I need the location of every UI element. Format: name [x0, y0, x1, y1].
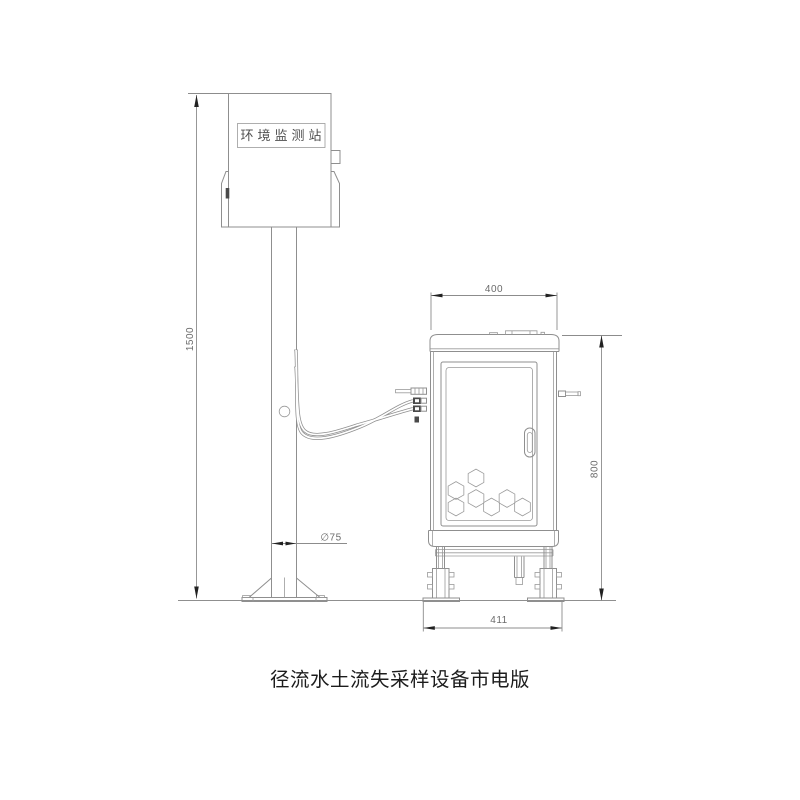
mounting-pole [272, 227, 299, 598]
dimension-411: 411 [423, 602, 562, 632]
door-handle [525, 428, 536, 457]
sampling-cabinet [396, 331, 581, 602]
station-bracket-left [222, 172, 229, 228]
drain-fitting-right [559, 391, 581, 397]
gland-1 [413, 398, 427, 405]
dimension-800: 800 [562, 336, 622, 601]
technical-drawing-page: 1500 环境监测站 [0, 0, 800, 800]
hexagon-pattern [448, 469, 530, 516]
pole-base [242, 578, 327, 602]
leg-right [528, 547, 565, 602]
dimension-1500-value: 1500 [185, 327, 196, 351]
station-side-tab [331, 151, 340, 164]
monitor-station-assembly: 环境监测站 [222, 94, 341, 602]
base-rails [436, 550, 554, 557]
technical-drawing: 1500 环境监测站 [0, 0, 800, 800]
dimension-800-value: 800 [590, 460, 601, 478]
signal-cables [296, 350, 413, 438]
cable-b [296, 367, 413, 435]
station-bracket-right [331, 172, 340, 228]
station-enclosure [229, 94, 332, 228]
arrow-up [194, 95, 199, 107]
drawing-caption: 径流水土流失采样设备市电版 [270, 669, 530, 691]
dimension-400-value: 400 [485, 284, 503, 295]
gusset-left [249, 578, 272, 598]
arrow-down [194, 587, 199, 599]
station-label-text: 环境监测站 [240, 128, 325, 143]
drain-pipe [515, 557, 525, 585]
cabinet-legs [423, 547, 564, 602]
station-bracket-sticker [226, 188, 230, 199]
gland-2 [413, 406, 427, 413]
leg-left [423, 547, 460, 602]
cabinet-cap [430, 331, 559, 352]
side-marker [415, 417, 420, 423]
dimension-diameter-value: ∅75 [320, 533, 341, 544]
top-fitting [396, 388, 427, 394]
dimension-411-value: 411 [490, 615, 507, 626]
dimension-1500: 1500 [185, 94, 229, 599]
dimension-400: 400 [431, 284, 557, 330]
pole-hole [279, 406, 290, 417]
cap-top-vents [490, 331, 545, 335]
cabinet-body [431, 352, 557, 531]
cabinet-base [429, 531, 559, 557]
dimension-pole-diameter: ∅75 [272, 533, 347, 546]
gusset-right [297, 578, 321, 598]
cabinet-door [441, 362, 537, 526]
